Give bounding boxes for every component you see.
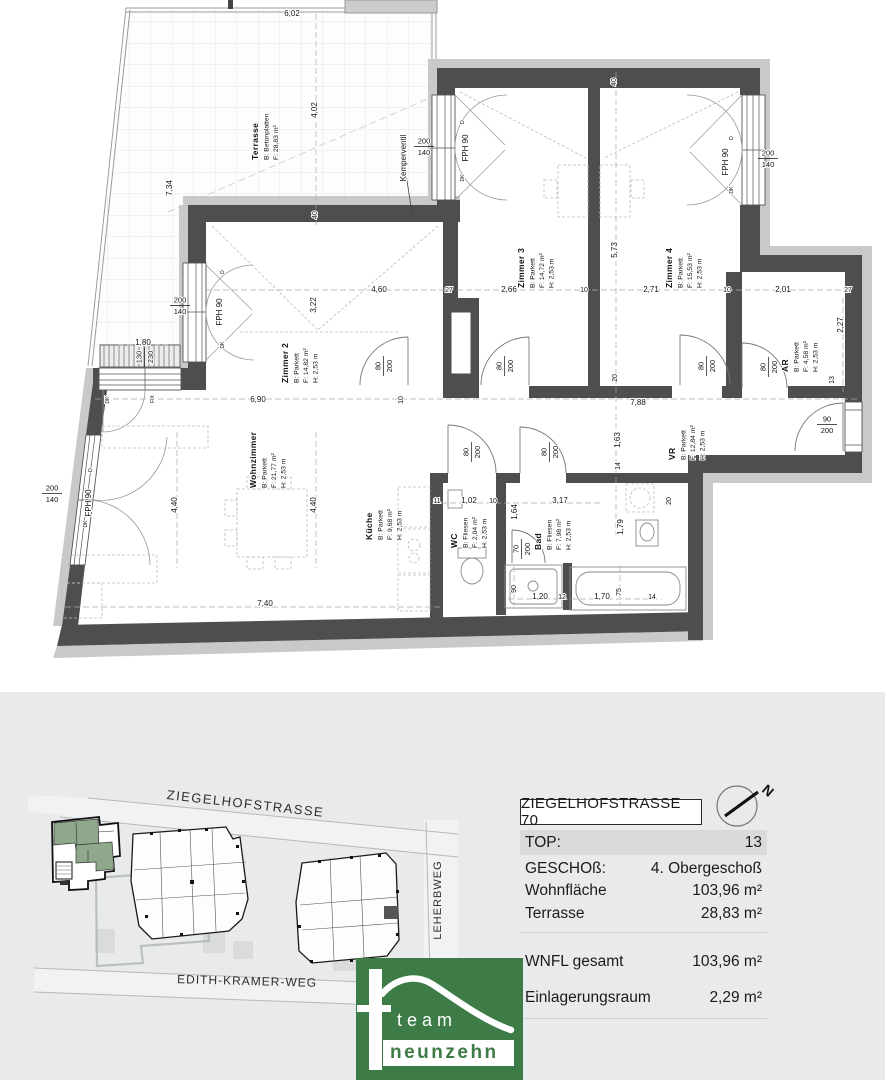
opening-size-bottom: 200 [523,543,532,556]
opening-size-top: 200 [762,149,775,158]
opening-size-bottom: 200 [385,360,394,373]
opening-size-top: 200 [174,296,187,305]
room-info-line: B: Parkett [681,430,688,460]
info-row-wnfl: WNFL gesamt 103,96 m² [520,950,767,974]
dim-label: 1,20 [532,592,548,601]
opening-size-top: 80 [374,362,383,370]
room-name: VR [667,448,677,460]
info-label: TOP: [525,834,561,852]
logo-text-box: neunzehn [383,1040,514,1066]
dim-label: 6,02 [284,9,300,18]
opening-size-bottom: 200 [770,361,779,374]
info-row-einlagerungsraum: Einlagerungsraum 2,29 m² [520,986,767,1010]
dim-label: 1,64 [510,504,519,520]
dim-label: D [220,270,226,274]
room-info-line: F: 15,53 m² [687,253,694,288]
dim-label: 10 [398,396,405,404]
info-value: 2,29 m² [709,989,762,1007]
dim-label: 3,17 [552,496,568,505]
room-info-line: B: Fliesen [547,520,554,550]
dim-label: D [460,120,466,124]
logo-text-neunzehn: neunzehn [390,1042,499,1064]
dim-label: DK [220,341,226,349]
room-info-line: H: 2,53 m [482,518,489,548]
opening-size-top: 130 [135,351,144,364]
room-info-line: B: Parkett [294,353,301,383]
opening-size-bottom: 200 [551,446,560,459]
room-info-line: H: 2,53 m [697,258,704,288]
dim-label: 1,80 [135,338,151,347]
room-info-line: F: 9,68 m² [387,508,394,540]
divider [520,1018,767,1019]
dim-label: 90 [511,585,518,593]
floorplan-page: { "panel": { "address": "ZIEGELHOFSTRASS… [0,0,885,1080]
opening-size-top: 80 [495,362,504,370]
dim-label: 6,90 [250,395,266,404]
room-info-line: F: 14,72 m² [539,253,546,288]
railing-post [228,0,233,9]
room-info-line: H: 2,53 m [549,258,556,288]
dim-label: 1,63 [613,432,622,448]
opening-size-bottom: 200 [821,426,834,435]
dim-label: 2,66 [501,285,517,294]
opening-size-top: 80 [462,448,471,456]
dim-label: 4,60 [371,285,387,294]
room-info-line: H: 2,53 m [566,520,573,550]
opening-size-top: 80 [697,362,706,370]
room-info-line: H: 2,53 m [700,430,707,460]
info-label: WNFL gesamt [525,953,623,971]
dim-label: DK [460,174,466,182]
room-info-line: H: 2,53 m [313,353,320,383]
dim-label: 10 [723,287,731,294]
opening-size-bottom: 200 [473,446,482,459]
info-value: 103,96 m² [692,953,762,971]
compass-needle [725,792,758,816]
room-name: Zimmer 4 [664,248,674,288]
opening-size-top: 80 [759,363,768,371]
room-name: WC [449,533,459,548]
dim-label: 1,79 [616,519,625,535]
team-neunzehn-logo: team neunzehn [356,958,523,1080]
room-info-line: F: 28,83 m² [273,125,280,160]
opening-size-bottom: 200 [708,360,717,373]
divider [520,932,767,933]
room-name: Zimmer 3 [516,248,526,288]
room-info-line: H: 2,53 m [281,458,288,488]
dim-label: 27 [844,287,852,294]
dim-label: FPH 90 [461,134,470,162]
dim-label: FPH 90 [84,489,93,517]
opening-size-top: 70 [512,545,521,553]
dim-label: 2,27 [836,317,845,333]
opening-size-top: 90 [823,415,831,424]
dim-label: DK [83,520,89,528]
dim-label: 7,88 [630,398,646,407]
dim-label: 27 [445,287,453,294]
room-info-line: B: Parkett [530,258,537,288]
dim-label: 13 [829,376,836,384]
info-label: Terrasse [525,905,584,923]
opening-size-bottom: 140 [762,160,775,169]
dim-label: FPH 90 [721,148,730,176]
dim-label: 10 [489,498,497,505]
site-subject-building [52,817,120,890]
room-info-line: B: Fliesen [463,518,470,548]
room-info-line: H: 2,53 m [397,510,404,540]
dim-label: 10 [580,287,588,294]
room-info-line: F: 4,58 m² [803,340,810,372]
floorplan-drawing: TerrasseB: BetonplattenF: 28,83 m²Zimmer… [0,0,885,692]
dim-label: 75 [616,588,623,596]
info-label: GESCHOß: [525,860,606,878]
dim-label: FIX [150,394,156,402]
address-box: ZIEGELHOFSTRASSE 70 [520,799,702,825]
dim-label: 4,40 [309,497,318,513]
room-name: Küche [364,513,374,540]
room-label-block: KücheB: ParkettF: 9,68 m²H: 2,53 m [364,508,404,540]
dim-label: D [729,136,735,140]
opening-size-top: 200 [46,484,59,493]
dim-label: 7,40 [257,599,273,608]
room-name: Wohnzimmer [248,431,258,488]
dim-label: 1,02 [461,496,477,505]
room-info-line: B: Parkett [262,458,269,488]
room-info-line: B: Betonplatten [264,113,271,160]
info-row-terrasse: Terrasse 28,83 m² [520,902,767,926]
site-building-middle [131,827,248,939]
dim-label: 2,71 [643,285,659,294]
dim-label: 5,73 [610,242,619,258]
dim-label: 7,34 [165,180,174,196]
room-name: AR [780,359,790,372]
room-info-line: F: 21,77 m² [271,453,278,488]
info-row-geschoss: GESCHOß: 4. Obergeschoß [520,858,767,880]
dim-label: 20 [666,497,673,505]
opening-size-bottom: 200 [506,360,515,373]
info-value: 4. Obergeschoß [651,860,762,878]
info-label: Wohnfläche [525,882,607,900]
opening-size-bottom: 230 [146,351,155,364]
room-info-line: F: 7,98 m² [556,518,563,550]
dim-label: D [88,468,94,472]
room-name: Zimmer 2 [280,343,290,383]
opening-size-bottom: 140 [174,307,187,316]
info-row-top: TOP: 13 [520,830,767,855]
dim-label: FPH 90 [215,298,224,326]
dim-label: 14 [615,462,622,470]
compass-north-label: N [759,781,777,800]
room-info-line: F: 14,82 m² [303,348,310,383]
dim-label: 3,22 [309,297,318,313]
dim-label: DK [105,396,111,404]
room-info-line: F: 2,04 m² [472,516,479,548]
room-name: Bad [533,533,543,550]
info-value: 103,96 m² [692,882,762,900]
dim-label: 20 [612,374,619,382]
info-row-wohnflaeche: Wohnfläche 103,96 m² [520,880,767,902]
dim-label: 40 [312,211,319,219]
dim-label: Kemperventil [399,134,408,181]
dim-label: 11 [433,498,440,505]
dim-label: 12 [558,594,566,601]
info-label: Einlagerungsraum [525,989,651,1007]
logo-text-team: team [397,1010,457,1031]
opening-size-bottom: 140 [418,148,431,157]
street-label-leherbweg: LEHERBWEG [432,860,444,939]
room-info-line: B: Parkett [678,258,685,288]
dim-label: 40 [611,78,618,86]
opening-size-top: 80 [540,448,549,456]
dim-label: 1,70 [594,592,610,601]
info-value: 28,83 m² [701,905,762,923]
room-info-line: F: 12,84 m² [690,425,697,460]
opening-size-top: 200 [418,137,431,146]
neighbour-wall [345,0,437,13]
dim-label: 4,02 [310,102,319,118]
site-building-right [296,853,399,963]
dim-label: DK [729,186,735,194]
room-info-line: H: 2,53 m [813,342,820,372]
dim-label: 14 [648,594,656,601]
dim-label: 2,01 [775,285,791,294]
room-info-line: B: Parkett [378,510,385,540]
room-info-line: B: Parkett [794,342,801,372]
dim-label: 4,40 [170,497,179,513]
opening-size-bottom: 140 [46,495,59,504]
info-value: 13 [745,834,762,852]
room-name: Terrasse [250,123,260,160]
shaft [451,312,471,374]
